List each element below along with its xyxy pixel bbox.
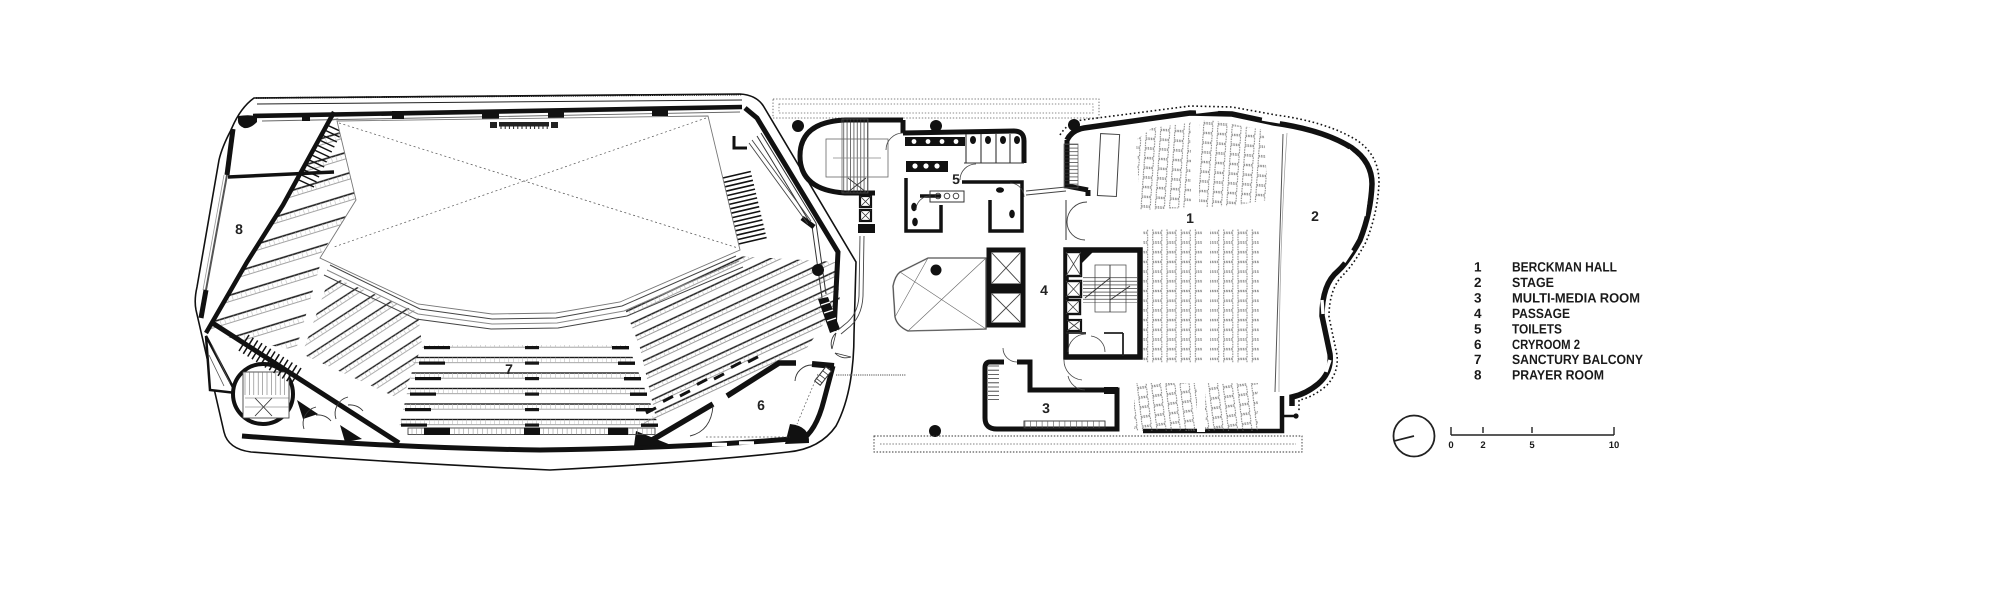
svg-text:CRYROOM 2: CRYROOM 2 xyxy=(1512,337,1580,352)
svg-text:TOILETS: TOILETS xyxy=(1512,321,1562,336)
svg-text:3: 3 xyxy=(1042,400,1050,416)
svg-text:6: 6 xyxy=(1474,337,1482,352)
svg-text:MULTI-MEDIA ROOM: MULTI-MEDIA ROOM xyxy=(1512,290,1640,305)
svg-text:4: 4 xyxy=(1474,306,1482,321)
svg-text:1: 1 xyxy=(1474,260,1482,275)
svg-text:1: 1 xyxy=(1186,210,1194,226)
svg-text:STAGE: STAGE xyxy=(1512,275,1554,290)
svg-text:BERCKMAN HALL: BERCKMAN HALL xyxy=(1512,260,1617,275)
svg-text:5: 5 xyxy=(1529,440,1535,451)
svg-text:8: 8 xyxy=(235,221,243,237)
svg-text:2: 2 xyxy=(1474,275,1482,290)
svg-text:5: 5 xyxy=(952,171,960,187)
svg-text:4: 4 xyxy=(1040,282,1048,298)
svg-text:7: 7 xyxy=(505,361,513,377)
svg-text:6: 6 xyxy=(757,397,765,413)
svg-text:PRAYER ROOM: PRAYER ROOM xyxy=(1512,368,1604,383)
svg-text:8: 8 xyxy=(1474,368,1482,383)
svg-text:SANCTURY BALCONY: SANCTURY BALCONY xyxy=(1512,352,1643,367)
svg-text:5: 5 xyxy=(1474,321,1482,336)
svg-text:PASSAGE: PASSAGE xyxy=(1512,306,1570,321)
svg-text:0: 0 xyxy=(1448,440,1453,451)
svg-text:2: 2 xyxy=(1480,440,1485,451)
svg-text:3: 3 xyxy=(1474,290,1482,305)
svg-text:2: 2 xyxy=(1311,208,1319,224)
svg-text:7: 7 xyxy=(1474,352,1482,367)
svg-text:10: 10 xyxy=(1609,440,1620,451)
